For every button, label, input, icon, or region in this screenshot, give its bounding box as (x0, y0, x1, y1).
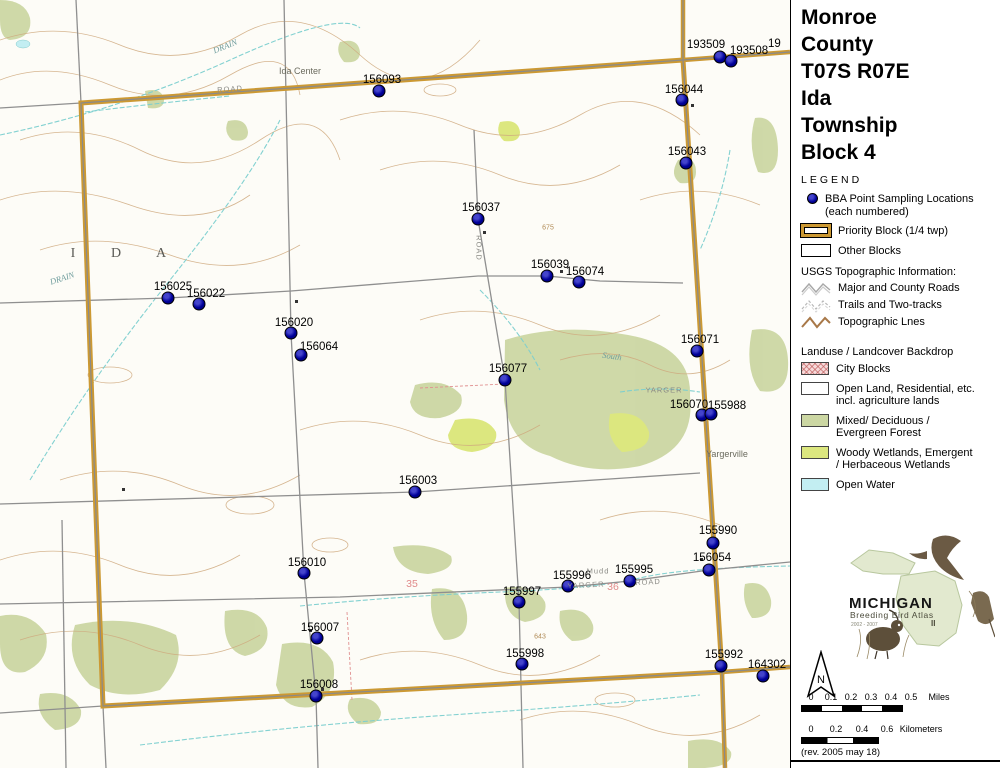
bba-point-dot-156043 (680, 157, 693, 170)
map-title-line: Ida (801, 85, 996, 112)
forest-swatch (801, 414, 829, 427)
map-text-label: 675 (542, 225, 554, 232)
map-text-label: Yargerville (706, 449, 748, 459)
bba-point-dot-156039 (541, 270, 554, 283)
logo-subtitle: Breeding Bird Atlas (850, 610, 934, 620)
map-title-line: Block 4 (801, 139, 996, 166)
bba-point-label-156007: 156007 (301, 622, 339, 634)
usgs-heading: USGS Topographic Information: (801, 266, 996, 278)
bba-point-dot-156093 (373, 85, 386, 98)
bba-point-label-155988: 155988 (708, 400, 746, 412)
legend-item-wetlands: Woody Wetlands, Emergent / Herbaceous We… (801, 446, 996, 472)
open-land-swatch (801, 382, 829, 395)
tick: 0.2 (845, 692, 858, 702)
map-sheet: 1560931935091935081560441560431560371560… (0, 0, 1000, 768)
tick: 0 (808, 692, 813, 702)
map-title-line: County (801, 31, 996, 58)
bba-point-label-155992: 155992 (705, 649, 743, 661)
legend-label: Trails and Two-tracks (838, 298, 942, 312)
map-title-line: Township (801, 112, 996, 139)
legend-label: Open Land, Residential, etc. (836, 383, 975, 396)
bba-point-label-156008: 156008 (300, 679, 338, 691)
logo-numeral: II (931, 619, 935, 628)
map-text-label: ROAD (635, 577, 661, 587)
legend-item-open-water: Open Water (801, 478, 996, 492)
scale-unit: Miles (928, 692, 949, 702)
bba-point-label-164302: 164302 (748, 659, 786, 671)
city-blocks-swatch (801, 362, 829, 375)
bba-point-label-156093: 156093 (363, 74, 401, 86)
map-text-label: DRAIN (212, 37, 239, 56)
legend-item-forest: Mixed/ Deciduous / Evergreen Forest (801, 414, 996, 440)
legend-label: Priority Block (1/4 twp) (838, 224, 948, 238)
legend-label: Evergreen Forest (836, 427, 930, 440)
topo-map: 1560931935091935081560441560431560371560… (0, 0, 790, 768)
bba-point-label-156039: 156039 (531, 259, 569, 271)
clipped-point-label: 19 (768, 38, 781, 50)
tick: 0.4 (885, 692, 898, 702)
topo-line-icon (801, 315, 831, 330)
mbba-logo: MICHIGAN Breeding Bird Atlas 2002 - 2007… (843, 533, 995, 665)
bba-point-label-156070: 156070 (670, 399, 708, 411)
bba-point-label-156037: 156037 (462, 202, 500, 214)
map-text-label: I (71, 246, 76, 262)
bba-point-label-156064: 156064 (300, 341, 338, 353)
bba-point-label-156044: 156044 (665, 84, 703, 96)
bba-point-dot-156071 (691, 345, 704, 358)
bba-point-label-193509: 193509 (687, 39, 725, 51)
legend-item-topo-lines: Topographic Lnes (801, 315, 996, 330)
miles-scale-bar (801, 705, 903, 712)
bba-point-label-156077: 156077 (489, 363, 527, 375)
landuse-heading: Landuse / Landcover Backdrop (801, 346, 996, 358)
map-text-label: DRAIN (49, 269, 76, 286)
bba-point-dot-156054 (703, 564, 716, 577)
legend-label: Major and County Roads (838, 281, 960, 295)
map-text-label: 643 (534, 634, 546, 641)
bba-point-dot-164302 (757, 670, 770, 683)
bba-point-label-155990: 155990 (699, 525, 737, 537)
legend-item-city-blocks: City Blocks (801, 362, 996, 376)
legend-label: BBA Point Sampling Locations (825, 193, 974, 206)
tick: 0.4 (856, 724, 869, 734)
map-text-label: ROAD (475, 235, 484, 261)
km-scale-bar (801, 737, 879, 744)
legend-label: incl. agriculture lands (836, 395, 975, 408)
legend-heading: LEGEND (801, 174, 996, 186)
bba-point-label-155995: 155995 (615, 564, 653, 576)
scale-unit: Kilometers (900, 724, 943, 734)
legend-item-major-roads: Major and County Roads (801, 281, 996, 296)
legend-item-bba-points: BBA Point Sampling Locations (each numbe… (801, 192, 996, 218)
legend-label: Topographic Lnes (838, 315, 925, 329)
north-label: N (817, 674, 825, 686)
bba-point-dot-156025 (162, 292, 175, 305)
bba-point-label-156071: 156071 (681, 334, 719, 346)
km-scale-ticks: 0 0.2 0.4 0.6 Kilometers (801, 724, 991, 734)
map-text-label: South (602, 350, 623, 363)
legend-label: Other Blocks (838, 244, 901, 258)
bba-point-dot-155992 (715, 660, 728, 673)
panel-divider (791, 760, 1000, 762)
bba-point-label-156010: 156010 (288, 557, 326, 569)
bba-point-dot-156077 (499, 374, 512, 387)
bba-point-label-193508: 193508 (730, 45, 768, 57)
legend-label: / Herbaceous Wetlands (836, 459, 973, 472)
legend-label: (each numbered) (825, 206, 974, 219)
other-blocks-swatch (801, 244, 831, 257)
tick: 0 (808, 724, 813, 734)
tick: 0.1 (825, 692, 838, 702)
legend-item-trails: Trails and Two-tracks (801, 298, 996, 313)
legend-item-other-blocks: Other Blocks (801, 244, 996, 258)
bba-point-label-155998: 155998 (506, 648, 544, 660)
tick: 0.6 (881, 724, 894, 734)
map-text-label: D (111, 246, 121, 262)
map-text-label: Ida Center (279, 66, 321, 76)
map-text-label: ROAD (217, 84, 243, 95)
bba-points-layer: 1560931935091935081560441560431560371560… (0, 0, 790, 768)
legend-item-priority-block: Priority Block (1/4 twp) (801, 224, 996, 238)
bba-point-label-156003: 156003 (399, 475, 437, 487)
legend-label: Open Water (836, 478, 895, 492)
logo-years: 2002 - 2007 (851, 622, 878, 628)
bba-point-dot-156003 (409, 486, 422, 499)
bba-point-label-155997: 155997 (503, 586, 541, 598)
map-title-line: T07S R07E (801, 58, 996, 85)
bba-point-dot-156037 (472, 213, 485, 226)
tick: 0.2 (830, 724, 843, 734)
bba-point-label-156054: 156054 (693, 552, 731, 564)
map-text-label: Mudd (587, 567, 610, 576)
map-text-label: YARGER (645, 386, 682, 395)
legend-label: City Blocks (836, 362, 890, 376)
bba-point-dot-156008 (310, 690, 323, 703)
priority-block-swatch (801, 224, 831, 237)
trails-line-icon (801, 298, 831, 313)
bba-point-label-156074: 156074 (566, 266, 604, 278)
wetland-swatch (801, 446, 829, 459)
bba-point-label-156043: 156043 (668, 146, 706, 158)
legend-panel: Monroe County T07S R07E Ida Township Blo… (790, 0, 1000, 768)
roads-line-icon (801, 281, 831, 296)
bba-point-dot-155990 (707, 537, 720, 550)
bba-point-label-156022: 156022 (187, 288, 225, 300)
map-text-label: A (156, 246, 166, 262)
legend-item-open-land: Open Land, Residential, etc. incl. agric… (801, 382, 996, 408)
miles-scale-ticks: 0 0.1 0.2 0.3 0.4 0.5 Miles (801, 692, 991, 702)
perched-bird-icon (969, 591, 995, 637)
tick: 0.5 (905, 692, 918, 702)
map-title-line: Monroe (801, 4, 996, 31)
legend-label: Woody Wetlands, Emergent (836, 447, 973, 460)
map-text-label: 35 (406, 578, 418, 590)
tick: 0.3 (865, 692, 878, 702)
map-text-label: 36 (607, 581, 619, 593)
legend-label: Mixed/ Deciduous / (836, 415, 930, 428)
open-water-swatch (801, 478, 829, 491)
revision-note: (rev. 2005 may 18) (801, 747, 880, 758)
bba-point-label-156020: 156020 (275, 317, 313, 329)
map-text-label: YARGER (567, 580, 605, 591)
bba-point-icon (807, 193, 818, 204)
